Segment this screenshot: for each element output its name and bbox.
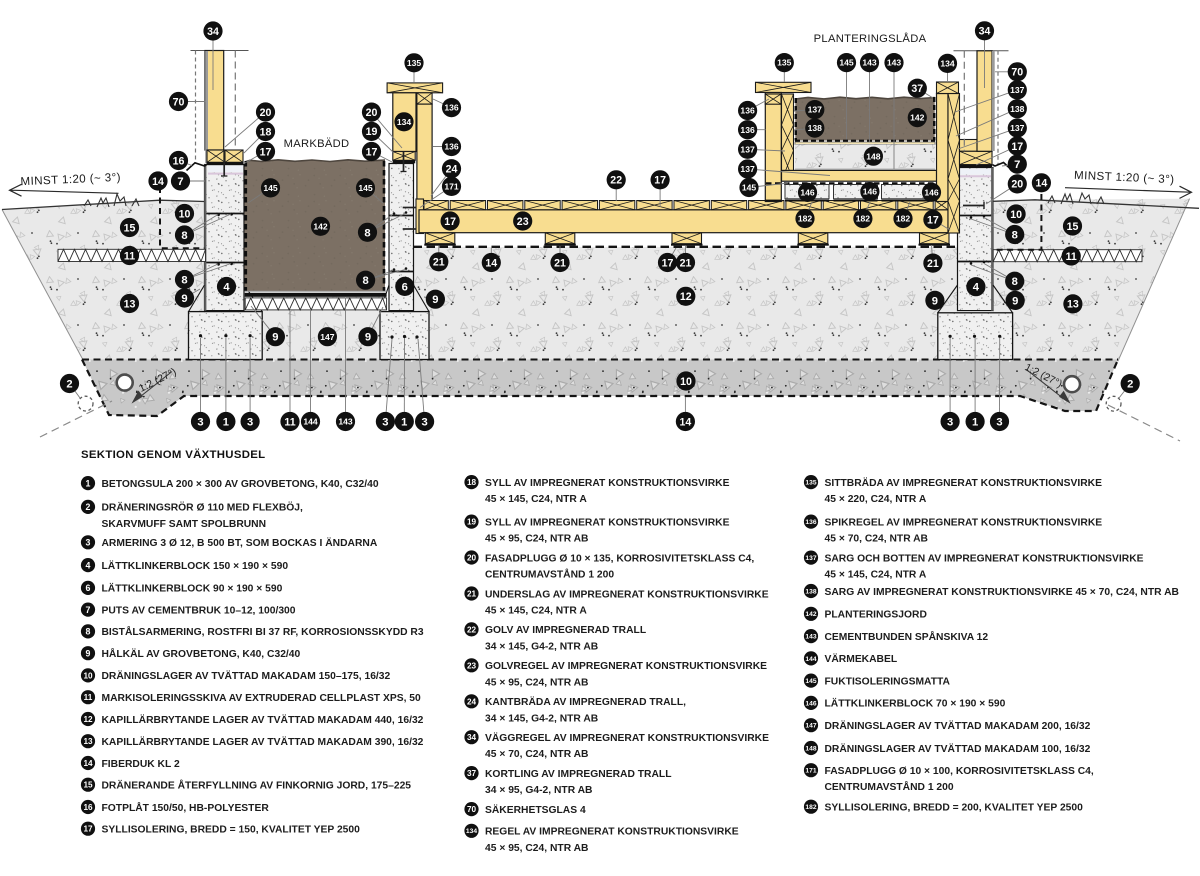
svg-text:MARKBÄDD: MARKBÄDD bbox=[284, 138, 350, 150]
svg-text:3: 3 bbox=[947, 417, 953, 429]
svg-text:14: 14 bbox=[485, 257, 497, 269]
svg-text:135: 135 bbox=[407, 58, 422, 68]
svg-text:146: 146 bbox=[863, 187, 878, 197]
svg-text:LÄTTKLINKERBLOCK 150 × 190 × 5: LÄTTKLINKERBLOCK 150 × 190 × 590 bbox=[102, 559, 289, 572]
svg-text:134: 134 bbox=[397, 117, 412, 127]
svg-text:147: 147 bbox=[320, 332, 335, 342]
svg-text:138: 138 bbox=[1010, 104, 1025, 114]
svg-text:GOLV AV IMPREGNERAD TRALL: GOLV AV IMPREGNERAD TRALL bbox=[485, 625, 646, 636]
svg-text:7: 7 bbox=[177, 176, 183, 188]
svg-text:SKARVMUFF SAMT SPOLBRUNN: SKARVMUFF SAMT SPOLBRUNN bbox=[102, 519, 267, 530]
svg-text:182: 182 bbox=[798, 214, 813, 224]
svg-text:11: 11 bbox=[124, 250, 135, 262]
svg-text:144: 144 bbox=[303, 417, 318, 427]
svg-text:143: 143 bbox=[338, 417, 353, 427]
svg-text:SYLLISOLERING, BREDD = 150, KV: SYLLISOLERING, BREDD = 150, KVALITET YEP… bbox=[102, 825, 361, 836]
svg-text:145: 145 bbox=[742, 183, 757, 193]
svg-text:45 × 145, C24, NTR A: 45 × 145, C24, NTR A bbox=[485, 606, 587, 617]
svg-text:45 × 70, C24, NTR AB: 45 × 70, C24, NTR AB bbox=[825, 534, 929, 545]
svg-text:143: 143 bbox=[887, 58, 902, 68]
svg-text:9: 9 bbox=[932, 295, 938, 307]
svg-text:142: 142 bbox=[910, 113, 925, 123]
svg-text:FASADPLUGG Ø 10 × 135, KORROSI: FASADPLUGG Ø 10 × 135, KORROSIVITETSKLAS… bbox=[485, 553, 754, 564]
svg-text:34: 34 bbox=[979, 26, 991, 38]
svg-text:70: 70 bbox=[173, 96, 185, 108]
svg-text:34: 34 bbox=[207, 26, 219, 38]
svg-text:7: 7 bbox=[1014, 159, 1020, 171]
svg-text:2: 2 bbox=[66, 379, 72, 391]
svg-text:22: 22 bbox=[610, 175, 622, 187]
svg-text:45 × 145, C24, NTR A: 45 × 145, C24, NTR A bbox=[485, 494, 587, 505]
svg-text:24: 24 bbox=[446, 164, 458, 176]
svg-text:17: 17 bbox=[83, 825, 93, 834]
svg-text:145: 145 bbox=[805, 678, 816, 685]
svg-text:11: 11 bbox=[284, 416, 295, 428]
svg-text:13: 13 bbox=[124, 298, 136, 310]
svg-text:8: 8 bbox=[181, 230, 187, 242]
svg-text:135: 135 bbox=[777, 58, 792, 68]
svg-text:SYLL AV IMPREGNERAT KONSTRUKTI: SYLL AV IMPREGNERAT KONSTRUKTIONSVIRKE bbox=[485, 517, 730, 528]
svg-text:BETONGSULA 200 × 300 AV GROVBE: BETONGSULA 200 × 300 AV GROVBETONG, K40,… bbox=[102, 479, 379, 490]
svg-text:ARMERING 3 Ø 12, B 500 BT, SOM: ARMERING 3 Ø 12, B 500 BT, SOM BOCKAS I … bbox=[102, 536, 378, 549]
svg-text:9: 9 bbox=[181, 293, 187, 305]
svg-text:10: 10 bbox=[83, 671, 93, 680]
svg-text:142: 142 bbox=[313, 221, 328, 231]
svg-text:21: 21 bbox=[467, 589, 477, 598]
svg-text:10: 10 bbox=[1010, 209, 1022, 221]
svg-text:VÄGGREGEL AV IMPREGNERAT KONST: VÄGGREGEL AV IMPREGNERAT KONSTRUKTIONSVI… bbox=[485, 731, 769, 744]
svg-text:45 × 220, C24, NTR A: 45 × 220, C24, NTR A bbox=[825, 494, 927, 505]
svg-text:137: 137 bbox=[740, 164, 755, 174]
svg-text:15: 15 bbox=[1067, 221, 1079, 233]
svg-text:17: 17 bbox=[654, 175, 666, 187]
svg-text:136: 136 bbox=[805, 519, 816, 526]
svg-text:MARKISOLERINGSSKIVA AV EXTRUDE: MARKISOLERINGSSKIVA AV EXTRUDERAD CELLPL… bbox=[102, 693, 422, 704]
svg-text:19: 19 bbox=[467, 518, 477, 527]
svg-text:23: 23 bbox=[517, 216, 529, 228]
svg-text:146: 146 bbox=[924, 187, 939, 197]
svg-text:DRÄNINGSLAGER AV TVÄTTAD MAKAD: DRÄNINGSLAGER AV TVÄTTAD MAKADAM 150–175… bbox=[102, 669, 391, 682]
svg-text:147: 147 bbox=[805, 723, 816, 730]
svg-text:11: 11 bbox=[1066, 251, 1077, 263]
svg-text:LÄTTKLINKERBLOCK 70 × 190 × 59: LÄTTKLINKERBLOCK 70 × 190 × 590 bbox=[825, 697, 1006, 710]
svg-text:13: 13 bbox=[1067, 299, 1079, 311]
svg-text:182: 182 bbox=[805, 804, 816, 811]
svg-text:8: 8 bbox=[181, 275, 187, 287]
svg-text:LÄTTKLINKERBLOCK 90 × 190 × 59: LÄTTKLINKERBLOCK 90 × 190 × 590 bbox=[102, 582, 283, 595]
svg-text:CENTRUMAVSTÅND 1 200: CENTRUMAVSTÅND 1 200 bbox=[825, 780, 954, 793]
svg-text:137: 137 bbox=[1010, 123, 1025, 133]
svg-text:17: 17 bbox=[366, 146, 378, 158]
svg-text:DRÄNERANDE ÅTERFYLLNING AV FIN: DRÄNERANDE ÅTERFYLLNING AV FINKORNIG JOR… bbox=[102, 779, 412, 792]
svg-text:21: 21 bbox=[927, 258, 939, 270]
svg-text:MINST 1:20 (~ 3°): MINST 1:20 (~ 3°) bbox=[1074, 169, 1175, 186]
svg-text:9: 9 bbox=[86, 648, 91, 658]
svg-text:SITTBRÄDA AV IMPREGNERAT KONST: SITTBRÄDA AV IMPREGNERAT KONSTRUKTIONSVI… bbox=[825, 476, 1103, 489]
svg-text:DRÄNINGSLAGER AV TVÄTTAD MAKAD: DRÄNINGSLAGER AV TVÄTTAD MAKADAM 100, 16… bbox=[825, 742, 1091, 755]
svg-text:16: 16 bbox=[83, 803, 93, 812]
svg-text:134: 134 bbox=[466, 828, 477, 835]
svg-text:4: 4 bbox=[973, 282, 980, 294]
svg-text:VÄRMEKABEL: VÄRMEKABEL bbox=[825, 652, 898, 665]
svg-text:19: 19 bbox=[366, 126, 378, 138]
svg-text:45 × 95, C24, NTR AB: 45 × 95, C24, NTR AB bbox=[485, 843, 589, 854]
svg-text:17: 17 bbox=[662, 257, 674, 269]
svg-text:PUTS AV CEMENTBRUK 10–12, 100/: PUTS AV CEMENTBRUK 10–12, 100/300 bbox=[102, 605, 296, 616]
svg-text:142: 142 bbox=[805, 611, 816, 618]
svg-text:136: 136 bbox=[740, 125, 755, 135]
svg-text:CEMENTBUNDEN SPÅNSKIVA 12: CEMENTBUNDEN SPÅNSKIVA 12 bbox=[825, 630, 989, 643]
svg-text:21: 21 bbox=[680, 257, 692, 269]
svg-text:1: 1 bbox=[223, 417, 229, 429]
svg-text:34: 34 bbox=[467, 733, 477, 742]
svg-text:171: 171 bbox=[444, 181, 459, 191]
svg-text:FUKTISOLERINGSMATTA: FUKTISOLERINGSMATTA bbox=[825, 676, 951, 687]
svg-text:14: 14 bbox=[152, 176, 164, 188]
svg-text:2: 2 bbox=[1127, 379, 1133, 391]
svg-text:3: 3 bbox=[247, 417, 253, 429]
svg-text:FASADPLUGG Ø 10 × 100, KORROSI: FASADPLUGG Ø 10 × 100, KORROSIVITETSKLAS… bbox=[825, 766, 1094, 777]
svg-text:SEKTION GENOM VÄXTHUSDEL: SEKTION GENOM VÄXTHUSDEL bbox=[81, 448, 265, 461]
svg-text:24: 24 bbox=[467, 697, 477, 706]
svg-text:12: 12 bbox=[680, 291, 692, 303]
svg-text:136: 136 bbox=[444, 142, 459, 152]
svg-text:15: 15 bbox=[124, 222, 136, 234]
svg-text:135: 135 bbox=[805, 480, 816, 487]
svg-text:GOLVREGEL AV IMPREGNERAT KONST: GOLVREGEL AV IMPREGNERAT KONSTRUKTIONSVI… bbox=[485, 661, 767, 672]
svg-text:70: 70 bbox=[1011, 67, 1023, 79]
svg-text:20: 20 bbox=[366, 107, 378, 119]
svg-text:10: 10 bbox=[179, 208, 191, 220]
svg-text:1: 1 bbox=[86, 478, 91, 488]
svg-text:45 × 95, C24, NTR AB: 45 × 95, C24, NTR AB bbox=[485, 677, 589, 688]
svg-text:9: 9 bbox=[365, 332, 371, 344]
svg-text:34 × 145, G4-2, NTR AB: 34 × 145, G4-2, NTR AB bbox=[485, 713, 598, 724]
svg-text:KORTLING AV IMPREGNERAD TRALL: KORTLING AV IMPREGNERAD TRALL bbox=[485, 769, 671, 780]
svg-text:37: 37 bbox=[911, 83, 923, 95]
svg-text:22: 22 bbox=[467, 625, 477, 634]
svg-text:8: 8 bbox=[1012, 230, 1018, 242]
svg-text:171: 171 bbox=[805, 768, 816, 775]
svg-text:FIBERDUK KL 2: FIBERDUK KL 2 bbox=[102, 759, 180, 770]
svg-text:13: 13 bbox=[83, 737, 93, 746]
svg-text:134: 134 bbox=[940, 58, 955, 68]
svg-text:144: 144 bbox=[805, 656, 816, 663]
svg-text:1: 1 bbox=[972, 417, 978, 429]
svg-text:17: 17 bbox=[260, 146, 272, 158]
svg-text:4: 4 bbox=[86, 560, 91, 570]
svg-text:16: 16 bbox=[173, 155, 185, 167]
svg-text:10: 10 bbox=[680, 376, 692, 388]
svg-text:PLANTERINGSJORD: PLANTERINGSJORD bbox=[825, 610, 927, 621]
svg-text:FOTPLÅT 150/50, HB-POLYESTER: FOTPLÅT 150/50, HB-POLYESTER bbox=[102, 801, 270, 814]
svg-text:8: 8 bbox=[1012, 276, 1018, 288]
svg-text:17: 17 bbox=[444, 216, 456, 228]
svg-text:18: 18 bbox=[467, 478, 477, 487]
svg-text:KAPILLÄRBRYTANDE LAGER AV TVÄT: KAPILLÄRBRYTANDE LAGER AV TVÄTTAD MAKADA… bbox=[102, 713, 424, 726]
svg-text:3: 3 bbox=[421, 417, 427, 429]
svg-text:182: 182 bbox=[856, 214, 871, 224]
svg-text:6: 6 bbox=[86, 583, 91, 593]
svg-text:3: 3 bbox=[197, 417, 203, 429]
svg-text:137: 137 bbox=[740, 144, 755, 154]
svg-text:8: 8 bbox=[86, 627, 91, 637]
svg-text:8: 8 bbox=[364, 227, 370, 239]
svg-text:137: 137 bbox=[805, 555, 816, 562]
svg-text:182: 182 bbox=[896, 214, 911, 224]
svg-text:BISTÅLSARMERING, ROSTFRI BI 37: BISTÅLSARMERING, ROSTFRI BI 37 RF, KORRO… bbox=[102, 625, 424, 638]
svg-text:34 × 145, G4-2, NTR AB: 34 × 145, G4-2, NTR AB bbox=[485, 641, 598, 652]
svg-text:146: 146 bbox=[800, 187, 815, 197]
svg-text:15: 15 bbox=[83, 781, 93, 790]
svg-text:CENTRUMAVSTÅND 1 200: CENTRUMAVSTÅND 1 200 bbox=[485, 568, 614, 581]
svg-text:143: 143 bbox=[805, 634, 816, 641]
svg-text:20: 20 bbox=[467, 553, 477, 562]
svg-text:DRÄNINGSLAGER AV TVÄTTAD MAKAD: DRÄNINGSLAGER AV TVÄTTAD MAKADAM 200, 16… bbox=[825, 719, 1091, 732]
svg-text:3: 3 bbox=[382, 417, 388, 429]
svg-text:14: 14 bbox=[680, 416, 692, 428]
svg-text:KAPILLÄRBRYTANDE LAGER AV TVÄT: KAPILLÄRBRYTANDE LAGER AV TVÄTTAD MAKADA… bbox=[102, 735, 424, 748]
svg-text:145: 145 bbox=[263, 183, 278, 193]
svg-text:45 × 70, C24, NTR AB: 45 × 70, C24, NTR AB bbox=[485, 749, 589, 760]
svg-text:HÅLKÄL AV GROVBETONG, K40, C32: HÅLKÄL AV GROVBETONG, K40, C32/40 bbox=[102, 647, 301, 660]
svg-text:SÄKERHETSGLAS 4: SÄKERHETSGLAS 4 bbox=[485, 803, 586, 816]
svg-text:21: 21 bbox=[433, 257, 445, 269]
svg-text:146: 146 bbox=[805, 700, 816, 707]
svg-text:4: 4 bbox=[223, 282, 230, 294]
svg-text:138: 138 bbox=[805, 588, 816, 595]
svg-text:REGEL AV IMPREGNERAT KONSTRUKT: REGEL AV IMPREGNERAT KONSTRUKTIONSVIRKE bbox=[485, 827, 739, 838]
svg-text:23: 23 bbox=[467, 661, 477, 670]
svg-text:45 × 95, C24, NTR AB: 45 × 95, C24, NTR AB bbox=[485, 534, 589, 545]
svg-text:3: 3 bbox=[86, 537, 91, 547]
svg-text:136: 136 bbox=[740, 106, 755, 116]
svg-text:DRÄNERINGSRÖR Ø 110 MED FLEXBÖ: DRÄNERINGSRÖR Ø 110 MED FLEXBÖJ, bbox=[102, 501, 304, 514]
svg-text:SYLLISOLERING, BREDD = 200, KV: SYLLISOLERING, BREDD = 200, KVALITET YEP… bbox=[825, 803, 1084, 814]
svg-text:3: 3 bbox=[996, 417, 1002, 429]
svg-text:37: 37 bbox=[467, 769, 477, 778]
svg-text:148: 148 bbox=[805, 745, 816, 752]
svg-text:9: 9 bbox=[432, 294, 438, 306]
svg-text:6: 6 bbox=[402, 281, 408, 293]
svg-text:21: 21 bbox=[554, 257, 566, 269]
svg-text:KANTBRÄDA AV IMPREGNERAD TRALL: KANTBRÄDA AV IMPREGNERAD TRALL, bbox=[485, 695, 686, 708]
svg-text:17: 17 bbox=[1011, 141, 1023, 153]
svg-text:20: 20 bbox=[260, 107, 272, 119]
svg-text:9: 9 bbox=[272, 332, 278, 344]
svg-text:143: 143 bbox=[862, 58, 877, 68]
svg-text:45 × 145, C24, NTR A: 45 × 145, C24, NTR A bbox=[825, 570, 927, 581]
svg-text:137: 137 bbox=[1010, 85, 1025, 95]
svg-text:SYLL AV IMPREGNERAT KONSTRUKTI: SYLL AV IMPREGNERAT KONSTRUKTIONSVIRKE bbox=[485, 478, 730, 489]
svg-text:17: 17 bbox=[927, 214, 939, 226]
svg-text:PLANTERINGSLÅDA: PLANTERINGSLÅDA bbox=[814, 32, 927, 45]
svg-text:8: 8 bbox=[362, 275, 368, 287]
svg-text:SARG AV IMPREGNERAT KONSTRUKTI: SARG AV IMPREGNERAT KONSTRUKTIONSVIRKE 4… bbox=[825, 587, 1179, 598]
svg-text:138: 138 bbox=[808, 123, 823, 133]
svg-text:145: 145 bbox=[358, 183, 373, 193]
svg-text:2: 2 bbox=[86, 502, 91, 512]
svg-text:136: 136 bbox=[444, 103, 459, 113]
svg-text:UNDERSLAG AV IMPREGNERAT KONST: UNDERSLAG AV IMPREGNERAT KONSTRUKTIONSVI… bbox=[485, 589, 769, 600]
svg-text:SARG OCH BOTTEN AV IMPREGNERAT: SARG OCH BOTTEN AV IMPREGNERAT KONSTRUKT… bbox=[825, 553, 1144, 564]
svg-text:9: 9 bbox=[1012, 295, 1018, 307]
svg-text:34 × 95, G4-2, NTR AB: 34 × 95, G4-2, NTR AB bbox=[485, 785, 593, 796]
svg-text:18: 18 bbox=[260, 126, 272, 138]
svg-text:145: 145 bbox=[839, 58, 854, 68]
svg-text:137: 137 bbox=[808, 105, 823, 115]
svg-text:12: 12 bbox=[83, 715, 93, 724]
svg-text:14: 14 bbox=[83, 759, 93, 768]
svg-text:11: 11 bbox=[84, 693, 93, 702]
svg-text:SPIKREGEL AV IMPREGNERAT KONST: SPIKREGEL AV IMPREGNERAT KONSTRUKTIONSVI… bbox=[825, 517, 1103, 528]
svg-text:14: 14 bbox=[1036, 178, 1048, 190]
svg-text:70: 70 bbox=[467, 805, 477, 814]
svg-text:7: 7 bbox=[86, 605, 91, 615]
svg-text:20: 20 bbox=[1011, 179, 1023, 191]
svg-text:1: 1 bbox=[401, 417, 407, 429]
svg-text:148: 148 bbox=[866, 151, 881, 161]
svg-text:MINST 1:20 (~ 3°): MINST 1:20 (~ 3°) bbox=[20, 171, 121, 188]
